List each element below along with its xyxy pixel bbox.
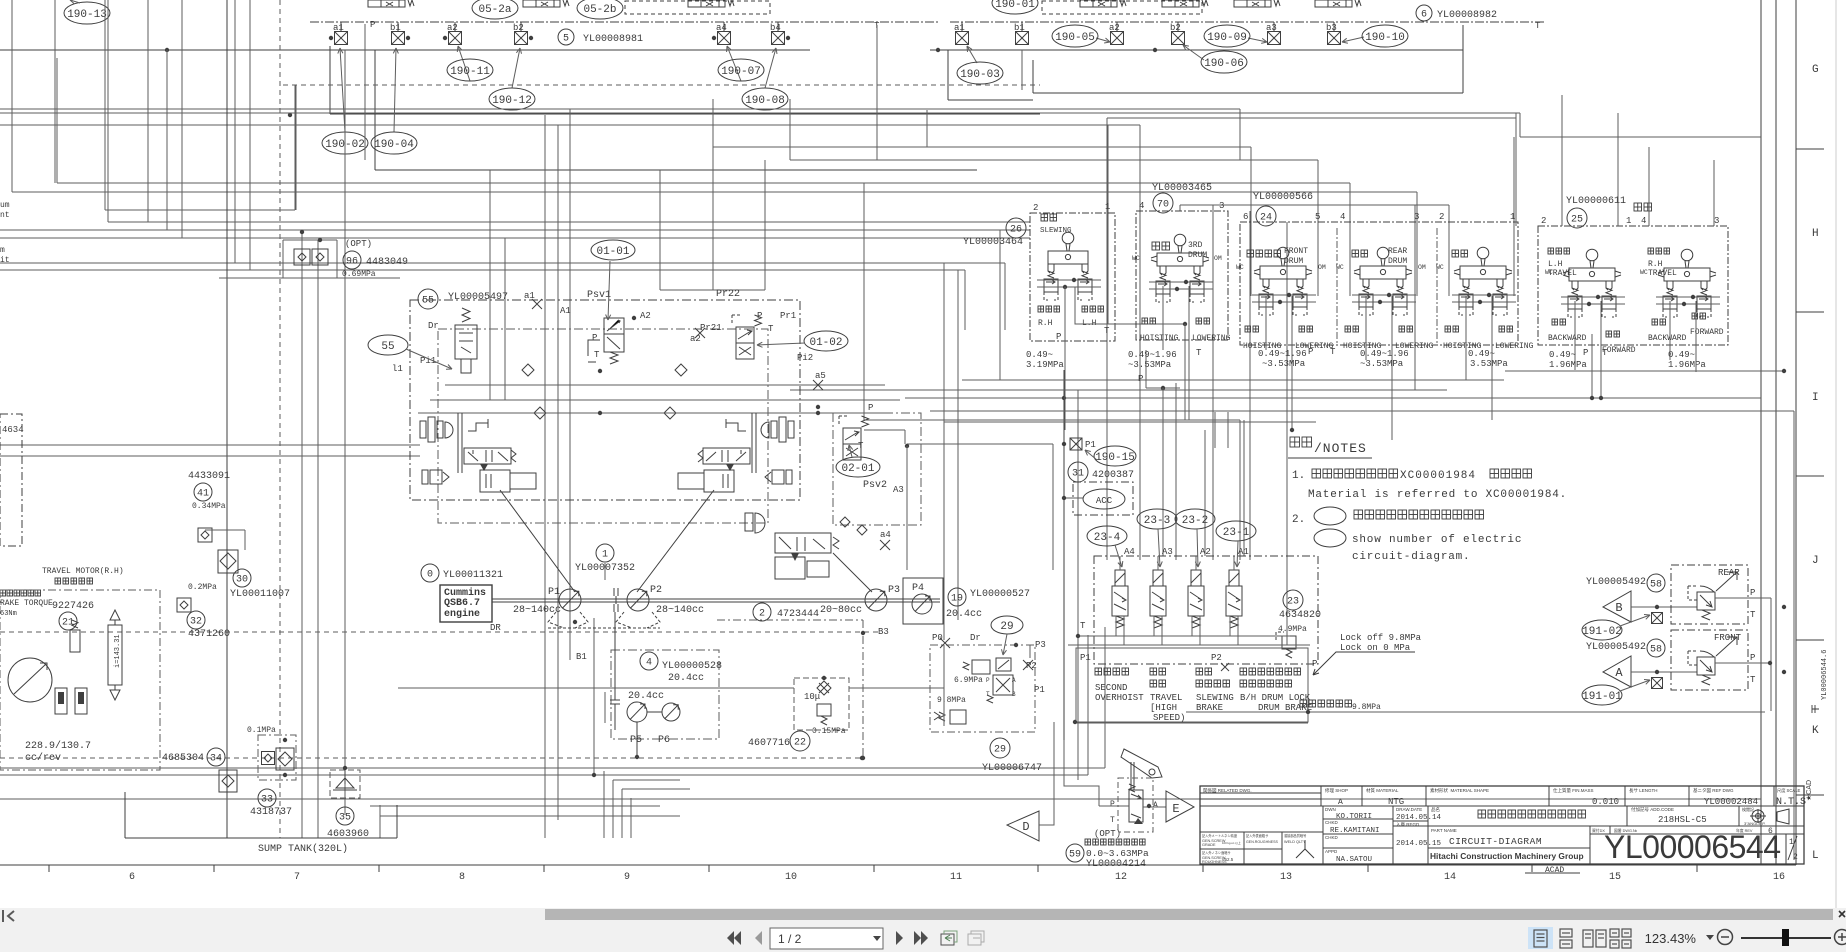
svg-text:12: 12 [1115, 872, 1127, 883]
svg-text:55: 55 [422, 296, 434, 307]
svg-text:6.9MPa: 6.9MPa [954, 676, 983, 685]
svg-text:YL00011007: YL00011007 [230, 589, 290, 600]
svg-text:ACAD: ACAD [1545, 866, 1564, 875]
svg-text:3: 3 [1714, 216, 1719, 226]
svg-text:a2: a2 [447, 23, 458, 33]
svg-text:100 kg.on 以上: 100 kg.on 以上 [1222, 841, 1241, 845]
svg-text:A2: A2 [1200, 547, 1211, 557]
svg-text:P3: P3 [888, 585, 900, 596]
svg-text:1.: 1. [1292, 470, 1305, 482]
svg-text:b1: b1 [1014, 23, 1025, 33]
svg-text:4200387: 4200387 [1092, 470, 1134, 481]
svg-text:0.49~: 0.49~ [1549, 350, 1576, 360]
svg-text:1: 1 [1510, 212, 1515, 222]
svg-text:32: 32 [190, 617, 202, 628]
svg-text:4433091: 4433091 [188, 471, 230, 482]
svg-text:P6: P6 [658, 735, 670, 746]
svg-text:3.53MPa: 3.53MPa [1470, 359, 1508, 369]
svg-text:30: 30 [236, 575, 248, 586]
svg-text:41: 41 [197, 489, 209, 500]
svg-text:Dr: Dr [428, 321, 439, 331]
svg-text:0.2MPa: 0.2MPa [188, 583, 217, 592]
svg-text:20.4cc: 20.4cc [946, 609, 982, 620]
svg-text:96: 96 [346, 257, 358, 268]
svg-text:11: 11 [950, 872, 962, 883]
svg-text:show number of electric: show number of electric [1352, 534, 1522, 546]
svg-text:7: 7 [294, 872, 300, 883]
svg-text:59: 59 [1069, 850, 1081, 861]
svg-text:YL00008981: YL00008981 [583, 34, 643, 45]
svg-text:WC: WC [1132, 255, 1140, 262]
svg-text:SPEED): SPEED) [1153, 713, 1185, 723]
svg-text:24: 24 [1260, 213, 1272, 224]
svg-text:2: 2 [1793, 853, 1798, 862]
svg-text:0.49~: 0.49~ [1468, 349, 1495, 359]
svg-text:P: P [1110, 800, 1115, 809]
svg-text:入庫 REGD: 入庫 REGD [1396, 821, 1420, 828]
svg-text:T: T [1535, 21, 1541, 31]
svg-text:記入外表面粗サ: 記入外表面粗サ [1246, 833, 1268, 838]
svg-text:DRAW.DATE: DRAW.DATE [1396, 807, 1422, 812]
svg-text:SECOND: SECOND [1095, 683, 1127, 693]
svg-text:b3: b3 [1326, 23, 1337, 33]
svg-text:3”ANGLE P.: 3”ANGLE P. [1744, 821, 1766, 826]
svg-text:RAKE TORQUE: RAKE TORQUE [0, 599, 53, 608]
svg-text:14: 14 [1444, 872, 1456, 883]
svg-text:YL00005492: YL00005492 [1586, 642, 1646, 653]
svg-text:B: B [1615, 601, 1622, 615]
svg-text:DRUM: DRUM [1284, 257, 1303, 266]
svg-text:2: 2 [1541, 216, 1546, 226]
svg-text:29: 29 [1000, 621, 1013, 633]
svg-text:6: 6 [129, 872, 135, 883]
svg-text:228.9/130.7: 228.9/130.7 [25, 740, 91, 752]
svg-text:P: P [1750, 588, 1755, 598]
svg-text:Dr: Dr [970, 633, 981, 643]
svg-text:190-11: 190-11 [450, 66, 490, 78]
svg-text:2: 2 [759, 609, 765, 620]
svg-text:L: L [1812, 850, 1819, 862]
svg-text:05-2b: 05-2b [583, 4, 616, 16]
svg-text:P1: P1 [548, 587, 560, 598]
svg-text:191-02: 191-02 [1582, 626, 1622, 638]
svg-text:4483049: 4483049 [366, 257, 408, 268]
svg-text:YL00006544.6: YL00006544.6 [1821, 650, 1829, 700]
svg-text:13: 13 [1280, 872, 1292, 883]
svg-text:√62.5: √62.5 [1222, 857, 1234, 862]
svg-text:YL00006747: YL00006747 [982, 763, 1042, 774]
svg-text:5: 5 [1315, 212, 1320, 222]
svg-text:P1: P1 [1085, 440, 1096, 450]
svg-text:1: 1 [1105, 202, 1110, 212]
svg-text:P: P [370, 20, 375, 30]
svg-text:b1: b1 [390, 23, 401, 33]
svg-text:4.9MPa: 4.9MPa [1278, 625, 1307, 634]
svg-text:BACKWARD: BACKWARD [1648, 334, 1687, 343]
svg-text:修理 SHOP: 修理 SHOP [1325, 787, 1348, 794]
svg-text:a2: a2 [1109, 23, 1120, 33]
svg-text:20.4cc: 20.4cc [628, 691, 664, 702]
svg-text:Material is referred to XC0000: Material is referred to XC00001984. [1308, 489, 1567, 501]
svg-text:P: P [1312, 659, 1317, 669]
svg-text:P0: P0 [932, 633, 943, 643]
svg-text:engine: engine [444, 608, 480, 620]
svg-text:YL00000566: YL00000566 [1253, 192, 1313, 203]
svg-text:3RD: 3RD [1188, 241, 1203, 250]
svg-text:P2: P2 [1211, 653, 1222, 663]
svg-text:b2: b2 [513, 23, 524, 33]
svg-text:01-01: 01-01 [596, 246, 629, 258]
svg-text:SLEWING: SLEWING [1196, 693, 1234, 703]
svg-text:GEN.ROUGHNESS: GEN.ROUGHNESS [1246, 840, 1279, 844]
svg-text:A2: A2 [640, 311, 651, 321]
svg-text:58: 58 [1650, 580, 1662, 591]
svg-text:Pi2: Pi2 [797, 353, 813, 363]
svg-text:6: 6 [1243, 212, 1248, 222]
svg-text:GRADE: GRADE [1202, 843, 1216, 847]
svg-text:8: 8 [459, 872, 465, 883]
svg-text:Lock off 9.8MPa: Lock off 9.8MPa [1340, 633, 1422, 643]
svg-text:P: P [868, 403, 873, 413]
svg-text:m: m [0, 246, 5, 255]
svg-text:a4: a4 [716, 23, 727, 33]
svg-text:KO.TORII: KO.TORII [1336, 813, 1372, 821]
svg-text:190-07: 190-07 [721, 66, 761, 78]
svg-text:0.49~: 0.49~ [1668, 350, 1695, 360]
svg-text:23: 23 [1287, 597, 1299, 608]
svg-text:T: T [1104, 326, 1110, 336]
svg-text:A: A [1153, 801, 1158, 810]
svg-text:OM: OM [1214, 255, 1222, 262]
svg-text:34: 34 [210, 754, 222, 765]
svg-text:SUMP TANK(320L): SUMP TANK(320L) [258, 843, 348, 855]
svg-text:0.15MPa: 0.15MPa [812, 727, 846, 736]
svg-text:10: 10 [785, 872, 797, 883]
svg-text:XC00001984: XC00001984 [1400, 470, 1476, 482]
svg-text:218HSL-C5: 218HSL-C5 [1658, 815, 1707, 825]
svg-text:1: 1 [602, 550, 608, 561]
svg-text:DRUM: DRUM [1388, 257, 1407, 266]
svg-text:P: P [592, 333, 597, 343]
svg-text:PART NAME: PART NAME [1431, 828, 1457, 833]
svg-text:Pr1: Pr1 [780, 311, 796, 321]
svg-text:WELD QLTY: WELD QLTY [1284, 840, 1306, 844]
svg-text:1: 1 [1626, 216, 1631, 226]
svg-text:0.49~: 0.49~ [1026, 350, 1053, 360]
svg-text:A: A [1615, 666, 1623, 680]
svg-text:尺度 SCALE: 尺度 SCALE [1777, 787, 1800, 794]
svg-text:A3: A3 [1162, 547, 1173, 557]
svg-text:E: E [1172, 802, 1179, 816]
svg-text:ACC: ACC [1096, 496, 1113, 506]
svg-text:~3.53MPa: ~3.53MPa [1262, 359, 1306, 369]
svg-text:T: T [986, 691, 990, 698]
svg-text:4603960: 4603960 [327, 829, 369, 840]
svg-text:[HIGH: [HIGH [1150, 703, 1177, 713]
svg-text:9: 9 [624, 872, 630, 883]
svg-text:i=143.31: i=143.31 [114, 634, 122, 668]
svg-text:it: it [0, 256, 10, 265]
svg-text:0.010: 0.010 [1592, 797, 1619, 807]
svg-text:TRAVEL: TRAVEL [1150, 693, 1182, 703]
svg-text:21: 21 [62, 618, 74, 629]
svg-text:31: 31 [1072, 469, 1084, 480]
svg-text:T: T [594, 350, 600, 360]
svg-text:05-2a: 05-2a [478, 4, 511, 16]
svg-text:YL00003464: YL00003464 [963, 237, 1023, 248]
svg-text:23-3: 23-3 [1144, 515, 1170, 527]
svg-text:P1: P1 [1034, 685, 1045, 695]
svg-text:P: P [1056, 332, 1061, 342]
svg-text:YL00000528: YL00000528 [662, 661, 722, 672]
svg-text:NTG: NTG [1388, 797, 1404, 807]
svg-text:a1: a1 [333, 23, 344, 33]
svg-text:T: T [1602, 348, 1608, 358]
svg-text:TRAVEL MOTOR(R.H): TRAVEL MOTOR(R.H) [42, 567, 124, 576]
svg-text:T: T [1110, 816, 1115, 825]
svg-text:4: 4 [1641, 216, 1646, 226]
svg-text:28~140cc: 28~140cc [656, 605, 704, 616]
svg-text:REAR: REAR [1388, 247, 1407, 256]
svg-text:B3: B3 [878, 627, 889, 637]
svg-text:検閲記: 検閲記 [1742, 806, 1754, 812]
svg-text:190-12: 190-12 [492, 95, 532, 107]
svg-text:10μ: 10μ [804, 692, 821, 702]
svg-text:T: T [1330, 347, 1336, 357]
svg-text:6: 6 [1421, 10, 1427, 21]
svg-text:FRONT: FRONT [1284, 247, 1308, 256]
svg-text:Hitachi Construction Machinery: Hitachi Construction Machinery Group [1430, 851, 1584, 861]
svg-text:4723444: 4723444 [777, 609, 819, 620]
svg-text:190-10: 190-10 [1365, 32, 1405, 44]
svg-text:23-4: 23-4 [1094, 532, 1121, 544]
svg-text:b4: b4 [770, 23, 781, 33]
svg-text:33: 33 [261, 795, 273, 806]
svg-text:BACKWARD: BACKWARD [1548, 334, 1587, 343]
svg-text:~3.53MPa: ~3.53MPa [1128, 360, 1172, 370]
svg-text:LOWERING: LOWERING [1495, 342, 1534, 351]
svg-text:DWN: DWN [1325, 807, 1336, 812]
svg-text:190-06: 190-06 [1204, 58, 1244, 70]
svg-text:N.T.S: N.T.S [1776, 797, 1806, 808]
svg-text:2: 2 [1033, 203, 1038, 213]
svg-text:123.43%: 123.43% [1645, 931, 1697, 946]
svg-text:0.49~1.96: 0.49~1.96 [1258, 349, 1307, 359]
svg-text:T: T [1080, 621, 1086, 631]
svg-text:H: H [1812, 228, 1819, 240]
svg-text:記入外ノネシ面暗サ: 記入外ノネシ面暗サ [1202, 850, 1231, 855]
svg-text:2: 2 [1439, 212, 1444, 222]
svg-text:20.4cc: 20.4cc [668, 673, 704, 684]
svg-text:P: P [1750, 653, 1755, 663]
svg-text:02-01: 02-01 [841, 463, 874, 475]
svg-text:SLEWING: SLEWING [1040, 227, 1072, 235]
svg-text:190-08: 190-08 [745, 95, 785, 107]
svg-text:P: P [986, 677, 990, 684]
svg-text:0.49~1.96: 0.49~1.96 [1360, 349, 1409, 359]
svg-text:16: 16 [1773, 872, 1785, 883]
svg-text:CHKD: CHKD [1325, 835, 1339, 840]
svg-text:T: T [1750, 675, 1756, 685]
svg-text:CIRCUIT-DIAGRAM: CIRCUIT-DIAGRAM [1449, 836, 1542, 847]
svg-text:1: 1 [1789, 838, 1794, 847]
svg-text:OM: OM [1318, 264, 1326, 271]
svg-text:55: 55 [381, 341, 394, 353]
svg-text:Pr22: Pr22 [716, 289, 740, 300]
svg-text:YL00004214: YL00004214 [1086, 859, 1146, 870]
svg-text:0.0~3.63MPa: 0.0~3.63MPa [1086, 848, 1149, 859]
svg-text:9.8MPa: 9.8MPa [937, 696, 966, 705]
svg-text:4371260: 4371260 [188, 629, 230, 640]
svg-text:4634820: 4634820 [1279, 610, 1321, 621]
svg-text:P: P [1583, 348, 1588, 358]
svg-text:YL00005492: YL00005492 [1586, 577, 1646, 588]
svg-text:YL00008982: YL00008982 [1437, 10, 1497, 21]
svg-text:a4: a4 [880, 530, 891, 540]
svg-text:circuit-diagram.: circuit-diagram. [1352, 551, 1470, 563]
svg-text:A1: A1 [560, 306, 571, 316]
svg-text:5: 5 [563, 34, 569, 45]
svg-text:D: D [1022, 820, 1029, 834]
svg-text:J: J [1812, 555, 1819, 567]
svg-text:記入外メートルネシ精度: 記入外メートルネシ精度 [1202, 833, 1238, 838]
svg-text:P3: P3 [1035, 640, 1046, 650]
svg-text:YL00011321: YL00011321 [443, 570, 503, 581]
svg-text:A1: A1 [1238, 547, 1249, 557]
svg-text:9227426: 9227426 [52, 601, 94, 612]
svg-text:APPD: APPD [1325, 849, 1338, 854]
svg-text:190-01: 190-01 [995, 0, 1035, 11]
svg-text:YL00003465: YL00003465 [1152, 183, 1212, 194]
svg-text:品名: 品名 [1431, 806, 1440, 813]
svg-text:3: 3 [1414, 212, 1419, 222]
svg-text:191-01: 191-01 [1582, 691, 1622, 703]
svg-text:関係図 RELATED DWG.: 関係図 RELATED DWG. [1203, 787, 1252, 794]
svg-text:WC: WC [1545, 269, 1553, 276]
svg-text:HOISTING: HOISTING [1140, 334, 1179, 343]
svg-text:P: P [1138, 374, 1143, 384]
svg-text:WC: WC [1640, 269, 1648, 276]
svg-text:LOWERING: LOWERING [1192, 334, 1231, 343]
svg-text:1 / 2: 1 / 2 [778, 932, 802, 946]
svg-text:9.8MPa: 9.8MPa [1352, 703, 1381, 712]
svg-text:YL00005497: YL00005497 [448, 292, 508, 303]
svg-text:1.96MPa: 1.96MPa [1668, 360, 1706, 370]
svg-text:素材形状 MATERIAL SHAPE: 素材形状 MATERIAL SHAPE [1430, 787, 1489, 794]
svg-text:0.49~1.96: 0.49~1.96 [1128, 350, 1177, 360]
svg-text:YL00006544: YL00006544 [1604, 829, 1781, 865]
svg-text:★CAD: ★CAD [1805, 780, 1813, 801]
svg-text:T: T [858, 441, 864, 451]
svg-text:4634: 4634 [2, 425, 24, 435]
svg-text:P: P [1308, 347, 1313, 357]
svg-text:DRUM: DRUM [1188, 251, 1207, 260]
svg-text:A3: A3 [893, 485, 904, 495]
svg-text:YL00002484: YL00002484 [1704, 797, 1758, 807]
svg-text:NA.SATOU: NA.SATOU [1336, 856, 1372, 864]
svg-text:190-05: 190-05 [1055, 32, 1095, 44]
svg-text:A4: A4 [1124, 547, 1135, 557]
svg-text:35: 35 [339, 813, 351, 824]
svg-text:YL00000611: YL00000611 [1566, 196, 1626, 207]
svg-text:~3.53MPa: ~3.53MPa [1360, 359, 1404, 369]
svg-text:(OPT): (OPT) [1094, 829, 1121, 839]
svg-text:3: 3 [1219, 201, 1224, 211]
svg-text:A: A [1338, 798, 1343, 807]
svg-text:T: T [768, 324, 774, 334]
svg-text:Psv1: Psv1 [587, 290, 611, 301]
svg-text:2014.05.15: 2014.05.15 [1396, 840, 1442, 848]
svg-text:23-1: 23-1 [1223, 527, 1250, 539]
svg-text:b2: b2 [1170, 23, 1181, 33]
svg-text:2.: 2. [1292, 514, 1305, 526]
svg-text:63Nm: 63Nm [0, 610, 17, 618]
svg-text:20~80cc: 20~80cc [820, 605, 862, 616]
svg-text:1.96MPa: 1.96MPa [1549, 360, 1587, 370]
svg-text:01-02: 01-02 [809, 337, 842, 349]
svg-text:WC: WC [1236, 264, 1244, 271]
svg-text:a3: a3 [1266, 23, 1277, 33]
svg-text:L.H: L.H [1548, 260, 1563, 269]
svg-text:a5: a5 [815, 371, 826, 381]
svg-text:0: 0 [427, 570, 433, 581]
svg-text:R.H: R.H [1038, 319, 1053, 328]
svg-text:um: um [0, 201, 10, 210]
svg-text:P2: P2 [650, 585, 662, 596]
svg-text:B: B [1012, 691, 1016, 698]
svg-text:3.19MPa: 3.19MPa [1026, 360, 1064, 370]
svg-text:190-09: 190-09 [1207, 32, 1247, 44]
svg-text:K: K [1812, 725, 1819, 737]
svg-text:4: 4 [1139, 201, 1144, 211]
svg-text:基ニタ図 REF DWG: 基ニタ図 REF DWG [1693, 787, 1734, 794]
svg-text:4: 4 [646, 658, 652, 669]
svg-text:T: T [1750, 610, 1756, 620]
svg-text:23-2: 23-2 [1182, 515, 1208, 527]
svg-text:29: 29 [994, 745, 1006, 756]
svg-text:4318737: 4318737 [250, 807, 292, 818]
svg-text:0.1MPa: 0.1MPa [247, 726, 276, 735]
svg-text:P5: P5 [630, 735, 642, 746]
svg-text:I: I [1812, 392, 1819, 404]
svg-text:付加記号 ADD.CODE: 付加記号 ADD.CODE [1631, 806, 1674, 813]
svg-text:28~140cc: 28~140cc [513, 605, 561, 616]
svg-text:26: 26 [1010, 225, 1022, 236]
svg-text:4685304: 4685304 [162, 753, 204, 764]
svg-text:190-13: 190-13 [67, 9, 107, 21]
svg-text:58: 58 [1650, 645, 1662, 656]
svg-text:l1: l1 [392, 364, 403, 374]
svg-text:仕上質量 FIN.MASS: 仕上質量 FIN.MASS [1553, 787, 1594, 794]
svg-text:15: 15 [1609, 872, 1621, 883]
svg-text:A: A [1012, 677, 1016, 684]
svg-text:Psv2: Psv2 [863, 480, 887, 491]
svg-text:Pr21: Pr21 [700, 323, 722, 333]
svg-text:B1: B1 [576, 652, 587, 662]
svg-text:溶接部品質暗号: 溶接部品質暗号 [1284, 833, 1306, 838]
svg-text:G: G [1812, 64, 1819, 76]
svg-text:0.34MPa: 0.34MPa [192, 502, 226, 511]
svg-text:材質 MATERIAL: 材質 MATERIAL [1366, 787, 1399, 794]
svg-text:25: 25 [1571, 215, 1583, 226]
svg-text:FORWARD: FORWARD [1690, 328, 1724, 337]
svg-text:190-03: 190-03 [960, 69, 1000, 81]
svg-text:nt: nt [0, 211, 10, 220]
svg-text:YL00007352: YL00007352 [575, 563, 635, 574]
svg-text:a2: a2 [690, 334, 701, 344]
svg-text:/NOTES: /NOTES [1314, 441, 1367, 456]
svg-text:22: 22 [794, 738, 806, 749]
